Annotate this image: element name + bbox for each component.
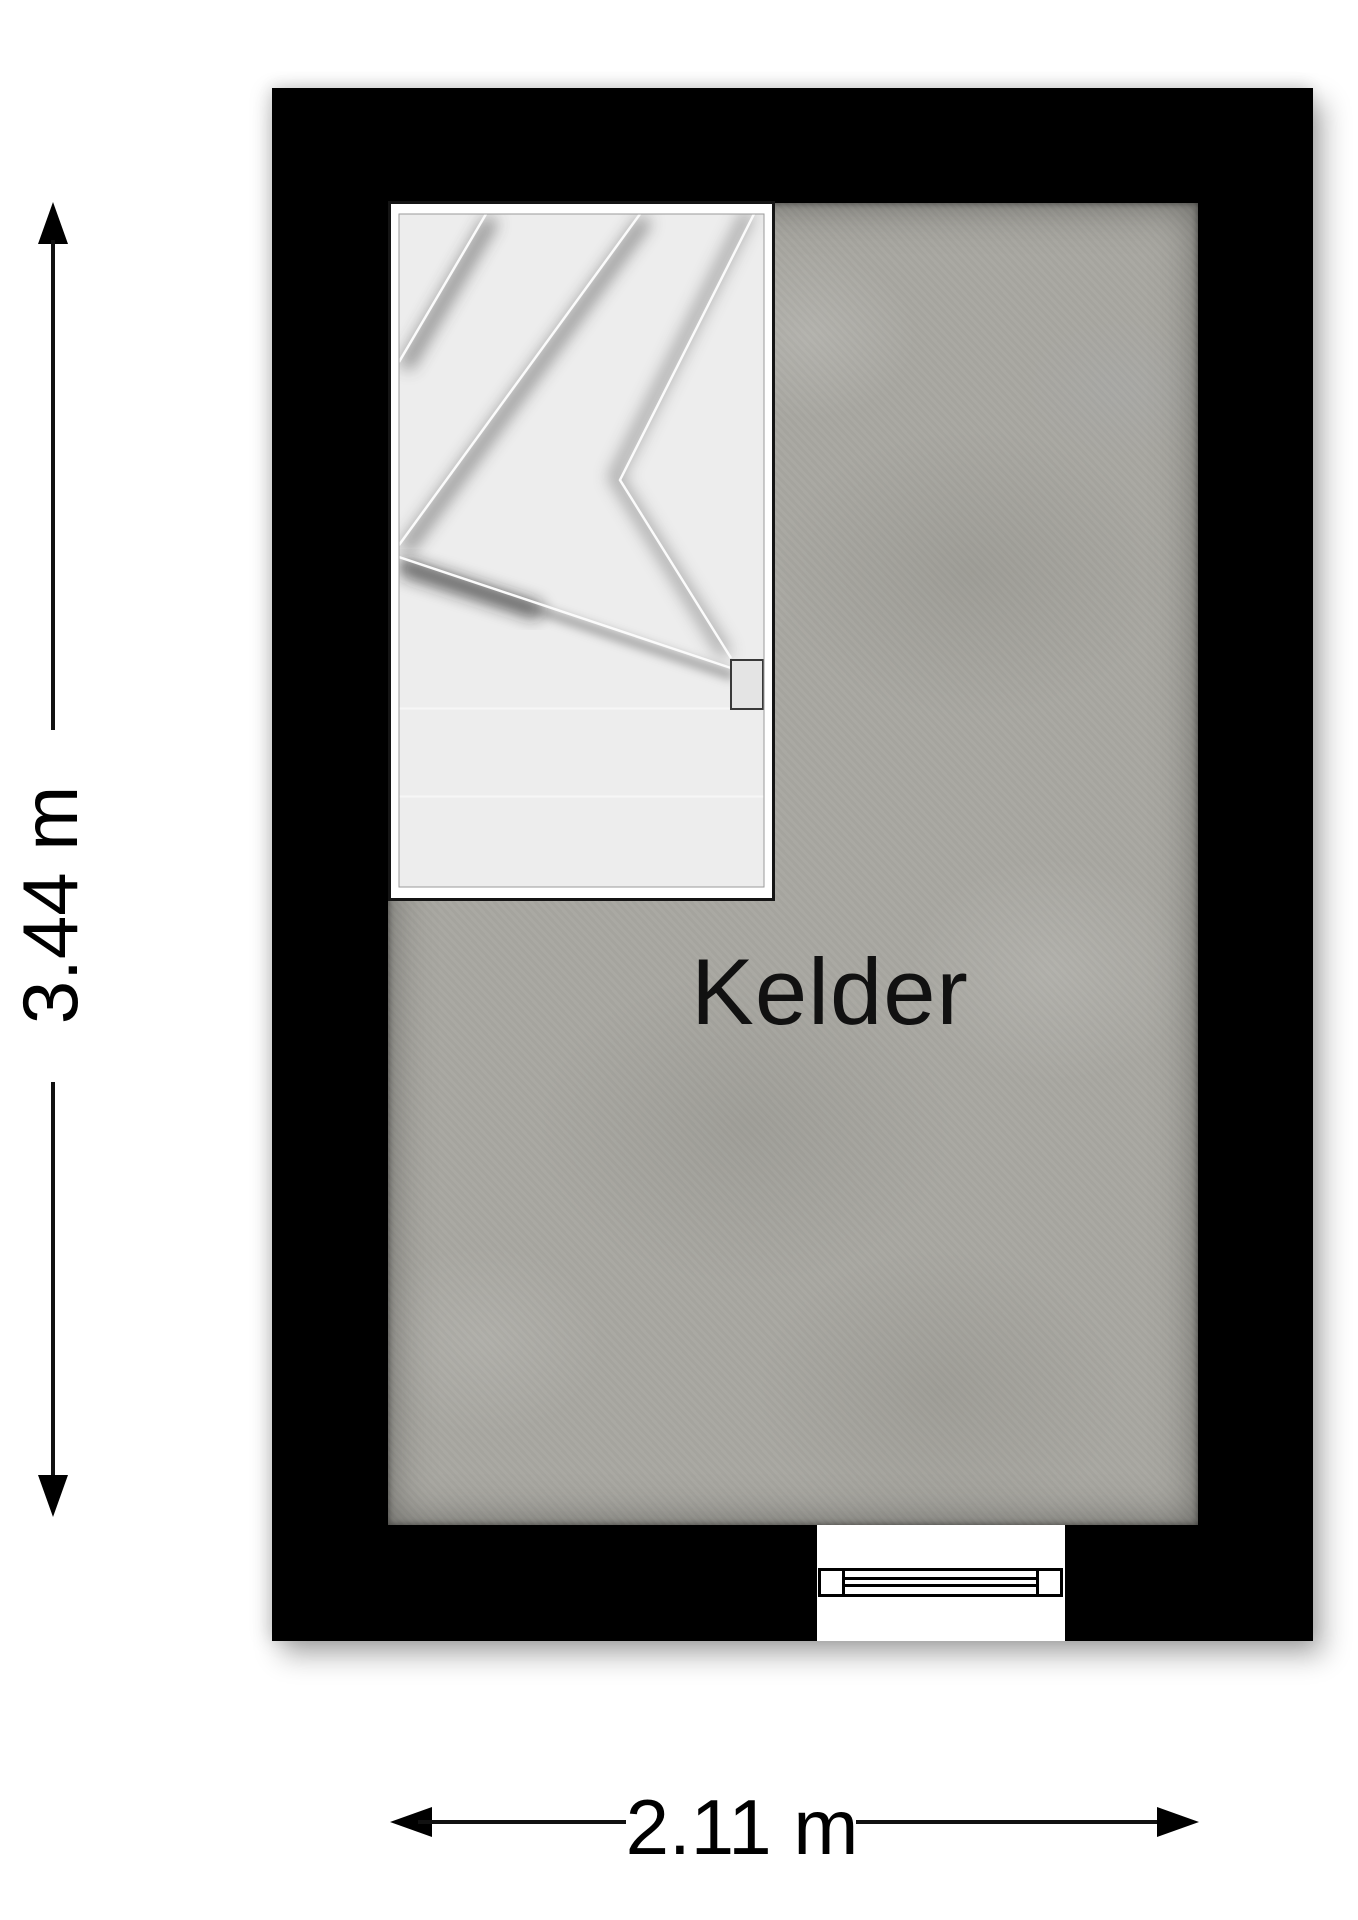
window-symbol xyxy=(818,1568,1063,1597)
horizontal-dimension-label: 2.11 m xyxy=(492,1782,992,1873)
dimension-line xyxy=(856,1820,1160,1824)
dimension-line xyxy=(51,1082,55,1480)
stair-treads xyxy=(399,212,764,887)
arrow-right-icon xyxy=(1157,1807,1199,1837)
basement-plan: Kelder xyxy=(272,88,1313,1641)
arrow-up-icon xyxy=(38,202,68,244)
room-label: Kelder xyxy=(580,938,1080,1046)
vertical-dimension-label: 3.44 m xyxy=(10,705,90,1105)
window-jamb xyxy=(842,1571,845,1594)
window-jamb xyxy=(1036,1571,1039,1594)
floorplan-canvas: 3.44 m 2.11 m xyxy=(0,0,1358,1920)
window-glazing-line xyxy=(845,1584,1036,1587)
arrow-down-icon xyxy=(38,1475,68,1517)
staircase xyxy=(388,201,775,901)
dimension-line xyxy=(51,240,55,730)
window-glazing-line xyxy=(845,1577,1036,1580)
stair-newel xyxy=(731,660,763,709)
